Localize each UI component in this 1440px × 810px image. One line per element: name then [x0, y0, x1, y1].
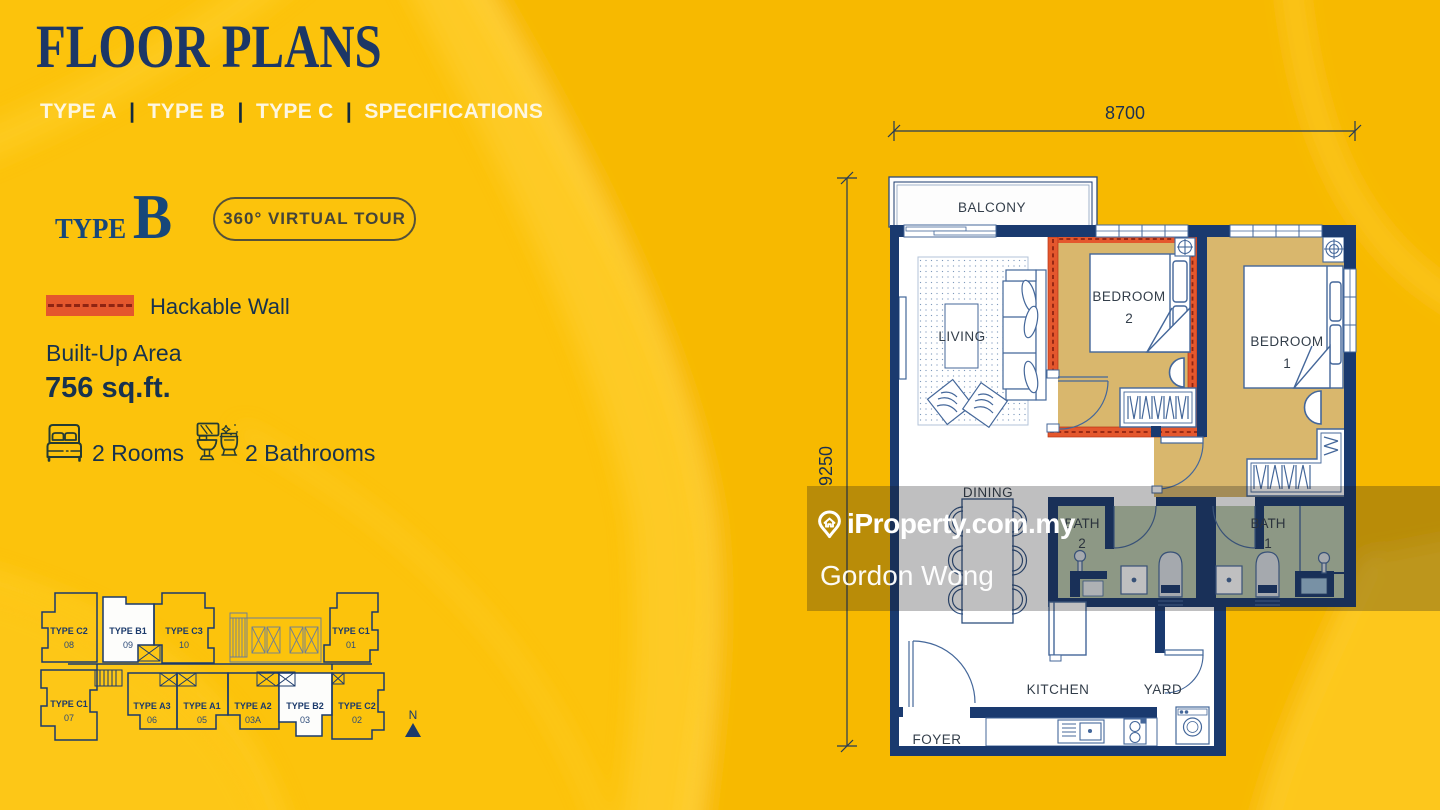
svg-text:TYPE C1: TYPE C1 — [332, 626, 370, 636]
svg-text:07: 07 — [64, 713, 74, 723]
svg-text:N: N — [409, 708, 418, 722]
svg-text:01: 01 — [346, 640, 356, 650]
svg-text:09: 09 — [123, 640, 133, 650]
svg-text:05: 05 — [197, 715, 207, 725]
svg-text:08: 08 — [64, 640, 74, 650]
svg-text:02: 02 — [352, 715, 362, 725]
svg-text:TYPE C3: TYPE C3 — [165, 626, 203, 636]
svg-text:TYPE C2: TYPE C2 — [338, 701, 376, 711]
svg-text:TYPE B2: TYPE B2 — [286, 701, 324, 711]
svg-text:TYPE A2: TYPE A2 — [234, 701, 271, 711]
svg-text:06: 06 — [147, 715, 157, 725]
svg-text:TYPE C2: TYPE C2 — [50, 626, 88, 636]
svg-text:TYPE C1: TYPE C1 — [50, 699, 88, 709]
svg-text:TYPE A3: TYPE A3 — [133, 701, 170, 711]
svg-text:TYPE B1: TYPE B1 — [109, 626, 147, 636]
svg-text:10: 10 — [179, 640, 189, 650]
svg-text:03: 03 — [300, 715, 310, 725]
svg-text:TYPE A1: TYPE A1 — [183, 701, 220, 711]
svg-text:03A: 03A — [245, 715, 261, 725]
